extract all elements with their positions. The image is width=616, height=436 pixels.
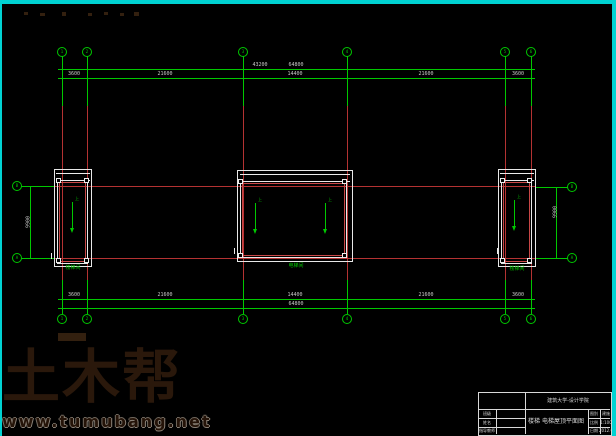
- grid-dimension-line-green: [58, 78, 535, 79]
- title-block-line: [479, 418, 525, 419]
- grid-dimension-line-green: [58, 299, 535, 300]
- axis-bubble-left-a: A: [12, 253, 22, 263]
- grid-dimension-line-green: [536, 258, 568, 259]
- title-block-meta-label: 图别: [590, 411, 598, 417]
- watermark-speck: [62, 12, 66, 16]
- grid-dimension-line-green: [347, 56, 348, 106]
- column-marker: [238, 179, 243, 184]
- grid-dimension-line-green: [58, 69, 535, 70]
- axis-number: 1: [61, 49, 63, 54]
- room-label-center: 电梯间: [288, 263, 303, 269]
- axis-bubble-bottom-4: 4: [342, 314, 352, 324]
- title-block-meta-label: 日期: [590, 428, 598, 434]
- axis-bubble-top-1: 1: [57, 47, 67, 57]
- axis-number: 6: [530, 316, 532, 321]
- axis-bubble-top-2: 2: [82, 47, 92, 57]
- room-label-left: 楼梯间: [65, 265, 80, 271]
- stair-direction-label: 上: [328, 198, 332, 202]
- axis-number: 4: [346, 316, 348, 321]
- grid-dimension-line-green: [58, 308, 535, 309]
- title-block-meta-value: 建施: [602, 411, 610, 417]
- grid-dimension-line-green: [87, 56, 88, 106]
- watermark-speck: [24, 12, 28, 15]
- wall-line-white: [51, 253, 52, 259]
- elevator-hall-wall-inner: [242, 183, 345, 256]
- dim-text: 21600: [418, 293, 433, 298]
- axis-bubble-right-a: A: [567, 253, 577, 263]
- window-border-right: [612, 0, 616, 436]
- dim-text: 3600: [512, 293, 524, 298]
- watermark-logo: 土木帮: [2, 348, 182, 406]
- dim-text: 21600: [157, 293, 172, 298]
- watermark-url: www.tumubang.net: [2, 412, 212, 431]
- column-marker: [500, 178, 505, 183]
- drawing-title: 楼梯 电梯屋顶平面图: [528, 419, 584, 425]
- title-block-field-label: 姓名: [483, 420, 491, 426]
- dim-text-vertical: 9900: [554, 206, 559, 218]
- grid-dimension-line-green: [62, 56, 63, 106]
- stair-direction-label: 上: [517, 195, 521, 199]
- title-block-line: [588, 410, 589, 434]
- grid-dimension-line-green: [243, 56, 244, 106]
- axis-bubble-left-b: B: [12, 181, 22, 191]
- axis-bubble-top-5: 5: [500, 47, 510, 57]
- stair-direction-arrowhead: [323, 229, 327, 234]
- column-marker: [84, 258, 89, 263]
- axis-number: B: [571, 184, 573, 189]
- axis-bubble-bottom-3: 3: [238, 314, 248, 324]
- title-block-line: [496, 410, 497, 434]
- dim-text-vertical: 9900: [27, 216, 32, 228]
- column-marker: [56, 178, 61, 183]
- room-label-right: 楼梯间: [509, 266, 524, 272]
- title-block-line: [525, 410, 526, 434]
- axis-number: 2: [86, 49, 88, 54]
- stair-direction-arrowhead: [512, 226, 516, 231]
- title-block-meta-value: 2012.6: [599, 428, 613, 434]
- window-border-left: [0, 0, 2, 436]
- title-block-school: 建筑大学-设计学院: [547, 398, 589, 404]
- title-block-line: [479, 409, 610, 410]
- axis-number: 2: [86, 316, 88, 321]
- dim-text: 64800: [288, 63, 303, 68]
- column-marker: [527, 258, 532, 263]
- axis-bubble-right-b: B: [567, 182, 577, 192]
- axis-number: 4: [346, 49, 348, 54]
- axis-bubble-top-6: 6: [526, 47, 536, 57]
- title-block-line: [589, 418, 610, 419]
- grid-dimension-line-green: [21, 258, 54, 259]
- watermark-speck: [88, 13, 92, 16]
- grid-dimension-line-green: [536, 187, 568, 188]
- watermark-speck: [40, 13, 45, 16]
- column-marker: [500, 258, 505, 263]
- grid-dimension-line-green: [531, 56, 532, 106]
- stair-direction-arrowhead: [253, 229, 257, 234]
- axis-number: 3: [242, 49, 244, 54]
- title-block-meta-label: 比例: [590, 420, 598, 426]
- axis-bubble-top-3: 3: [238, 47, 248, 57]
- watermark-speck: [120, 13, 124, 16]
- window-border-top: [0, 0, 616, 4]
- stair-direction-label: 上: [258, 198, 262, 202]
- dim-text: 14400: [287, 72, 302, 77]
- axis-number: A: [16, 255, 18, 260]
- axis-number: B: [16, 183, 18, 188]
- watermark-speck: [58, 333, 86, 341]
- axis-bubble-bottom-5: 5: [500, 314, 510, 324]
- dim-text: 3600: [68, 72, 80, 77]
- grid-dimension-line-green: [21, 186, 54, 187]
- title-block-meta-value: 1:100: [600, 420, 612, 426]
- watermark-speck: [104, 12, 108, 15]
- axis-bubble-bottom-6: 6: [526, 314, 536, 324]
- dim-text: 14400: [287, 293, 302, 298]
- stair-direction-arrowhead: [70, 228, 74, 233]
- column-marker: [238, 253, 243, 258]
- wall-line-white: [234, 248, 235, 254]
- axis-number: 3: [242, 316, 244, 321]
- grid-dimension-line-green: [556, 187, 557, 259]
- grid-dimension-line-green: [505, 56, 506, 106]
- axis-bubble-bottom-2: 2: [82, 314, 92, 324]
- title-block-line: [525, 393, 526, 409]
- watermark-speck: [134, 12, 139, 16]
- column-marker: [342, 179, 347, 184]
- axis-bubble-top-4: 4: [342, 47, 352, 57]
- axis-number: A: [571, 255, 573, 260]
- axis-number: 6: [530, 49, 532, 54]
- axis-number: 5: [504, 316, 506, 321]
- column-marker: [84, 178, 89, 183]
- stair-direction-label: 上: [75, 197, 79, 201]
- dim-text: 3600: [68, 293, 80, 298]
- dim-text: 43200: [252, 63, 267, 68]
- dim-text: 21600: [418, 72, 433, 77]
- title-block-field-label: 班级: [483, 411, 491, 417]
- axis-bubble-bottom-1: 1: [57, 314, 67, 324]
- column-marker: [527, 178, 532, 183]
- title-block-field-label: 指导教师: [479, 428, 495, 434]
- cad-drawing-canvas: 1 2 3 4 5 6 1 2 3 4 5 6 B A B A 3600 216…: [0, 0, 616, 436]
- axis-number: 5: [504, 49, 506, 54]
- dim-text: 64800: [288, 302, 303, 307]
- axis-number: 1: [61, 316, 63, 321]
- dim-text: 21600: [157, 72, 172, 77]
- column-marker: [56, 258, 61, 263]
- dim-text: 3600: [512, 72, 524, 77]
- column-marker: [342, 253, 347, 258]
- stair-shaft-left-wall-inner: [59, 182, 86, 262]
